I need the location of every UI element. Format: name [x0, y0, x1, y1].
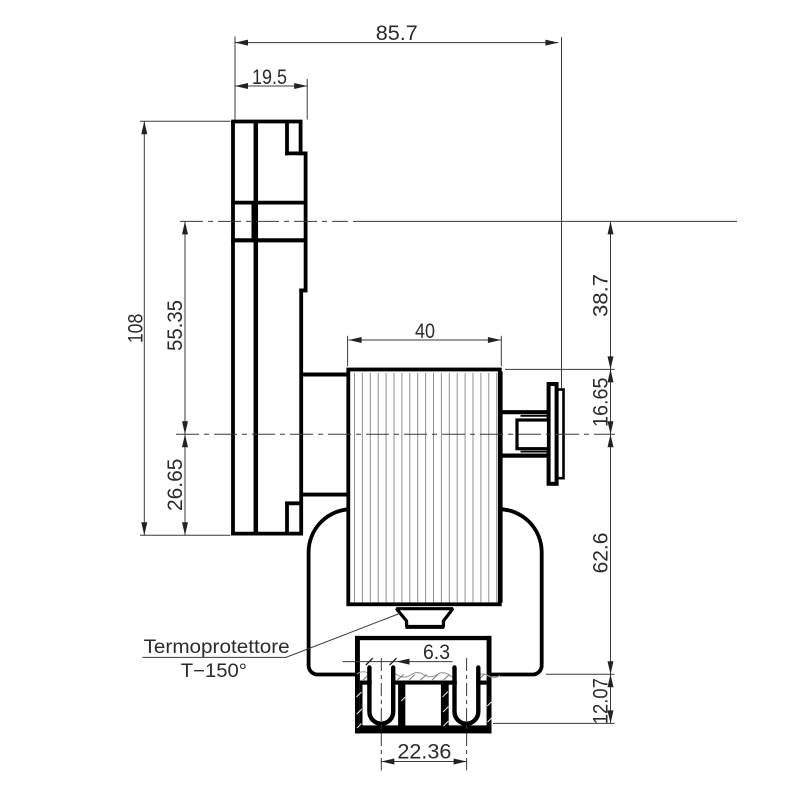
svg-text:55.35: 55.35 — [163, 300, 187, 351]
svg-text:16.65: 16.65 — [589, 377, 613, 427]
svg-text:Termoprotettore: Termoprotettore — [144, 637, 290, 658]
svg-text:26.65: 26.65 — [163, 459, 187, 511]
svg-text:19.5: 19.5 — [252, 65, 287, 89]
svg-text:22.36: 22.36 — [397, 740, 451, 764]
svg-text:108: 108 — [123, 314, 147, 344]
svg-text:6.3: 6.3 — [423, 640, 450, 664]
svg-text:40: 40 — [415, 319, 435, 343]
svg-text:12.07: 12.07 — [589, 678, 613, 724]
svg-text:62.6: 62.6 — [589, 533, 613, 574]
svg-text:85.7: 85.7 — [376, 21, 418, 45]
svg-text:T−150°: T−150° — [181, 661, 247, 682]
svg-text:38.7: 38.7 — [589, 274, 613, 317]
